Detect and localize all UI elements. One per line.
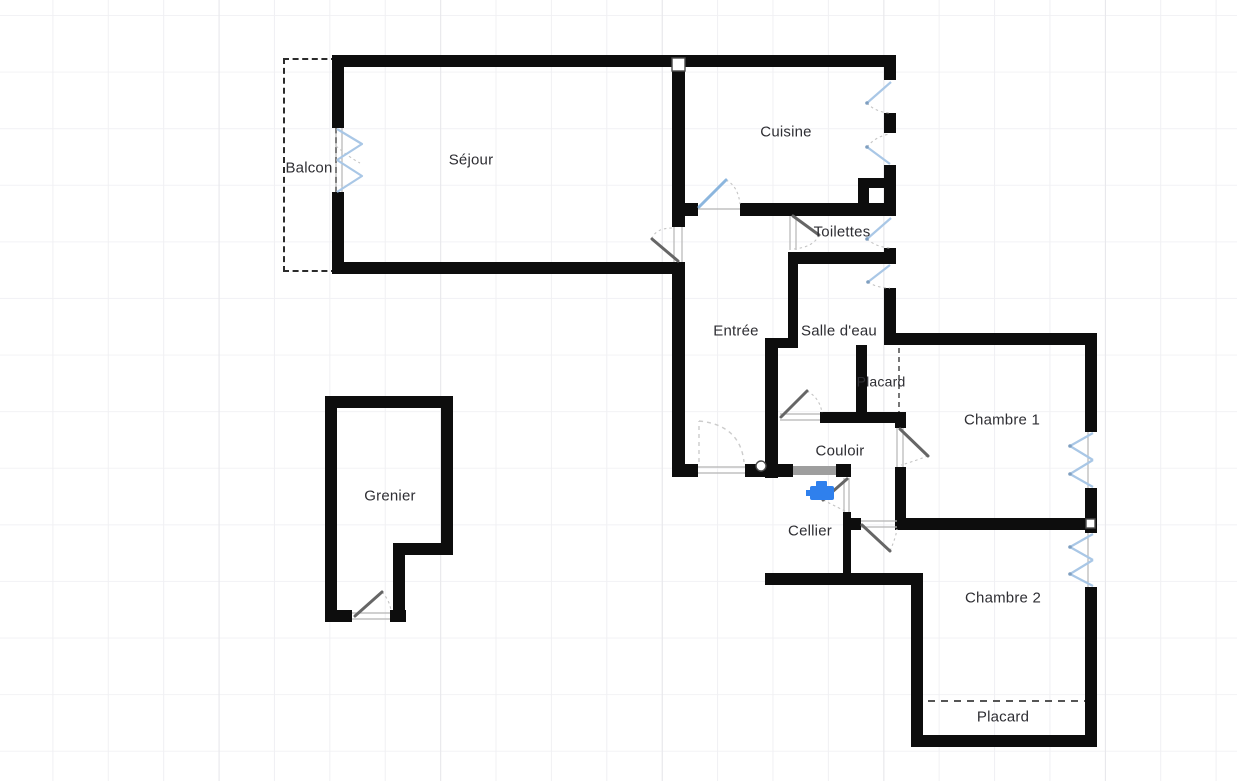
room-label-chambre-1[interactable]: Chambre 1	[964, 412, 1040, 429]
wall-right-seg-3[interactable]	[884, 165, 896, 216]
floorplan-canvas: Balcon Séjour Cuisine Toilettes Entrée S…	[0, 0, 1237, 781]
chambre1-window-panel-2[interactable]	[1070, 460, 1093, 487]
arc-cuisine-window2	[867, 134, 890, 147]
chambre2-door-leaf[interactable]	[862, 525, 890, 551]
room-label-balcon[interactable]: Balcon	[282, 160, 336, 177]
wall-chambre2-bottom[interactable]	[911, 735, 1097, 747]
toilettes-window[interactable]	[867, 218, 891, 239]
wall-entree-bottom-left[interactable]	[672, 464, 698, 477]
sejour-french-window-panel-2[interactable]	[337, 160, 362, 192]
wall-grenier-bottom-right[interactable]	[390, 610, 406, 622]
room-label-cuisine[interactable]: Cuisine	[760, 124, 811, 141]
arc-cuisine-window1	[867, 103, 890, 113]
front-door-arc	[699, 421, 744, 462]
room-label-placard-1[interactable]: Placard	[857, 374, 906, 391]
faucet-icon[interactable]	[806, 481, 834, 500]
wall-chambre2-right-lower[interactable]	[1085, 587, 1097, 747]
wall-grenier-right[interactable]	[441, 396, 453, 555]
wall-chambre1-right-upper[interactable]	[1085, 345, 1097, 432]
chambre2-window-panel-2[interactable]	[1070, 560, 1093, 586]
salle-eau-door-leaf[interactable]	[781, 391, 807, 417]
arc-salle-eau-window	[868, 282, 890, 288]
front-door-swing[interactable]	[699, 421, 744, 462]
chambre1-window-panel-1[interactable]	[1070, 433, 1093, 460]
wall-chambre1-left-stub[interactable]	[895, 412, 906, 428]
room-label-chambre-2[interactable]: Chambre 2	[965, 590, 1041, 607]
room-label-entree[interactable]: Entrée	[713, 323, 758, 340]
cuisine-window-1[interactable]	[867, 82, 891, 103]
room-label-toilettes[interactable]: Toilettes	[814, 224, 871, 241]
room-label-placard-2[interactable]: Placard	[977, 709, 1029, 726]
wall-chambre2-left[interactable]	[911, 573, 923, 747]
floorplan-drawing	[0, 0, 1237, 781]
wall-couloir-left[interactable]	[765, 338, 778, 478]
chambre2-window-panel-1[interactable]	[1070, 534, 1093, 560]
arc-grenier-door	[382, 592, 391, 611]
wall-entree-left[interactable]	[672, 274, 685, 477]
wall-joint-handle-square[interactable]	[672, 58, 685, 71]
wall-cuisine-bottom-right[interactable]	[740, 203, 858, 216]
couloir-cellier-opening[interactable]	[793, 466, 836, 475]
arc-toilettes-window	[867, 239, 890, 248]
walls	[325, 55, 1097, 747]
wall-joint-handle-square-2[interactable]	[1086, 519, 1095, 528]
wall-salle-eau-left[interactable]	[788, 252, 798, 348]
wall-grenier-bottom-left[interactable]	[325, 610, 352, 622]
wall-cuisine-bottom-left[interactable]	[672, 203, 698, 216]
chambre1-door-leaf[interactable]	[900, 429, 928, 456]
room-label-cellier[interactable]: Cellier	[788, 523, 832, 540]
wall-joint-handle-circle[interactable]	[756, 461, 766, 471]
arc-cuisine-door	[726, 180, 740, 204]
wall-sejour-bottom[interactable]	[332, 262, 685, 274]
arc-chambre2-door	[890, 529, 897, 551]
wall-right-seg-2[interactable]	[884, 113, 896, 133]
room-label-couloir[interactable]: Couloir	[816, 443, 865, 460]
wall-right-seg-1[interactable]	[884, 55, 896, 80]
arc-chambre1-door	[901, 456, 928, 465]
wall-grenier-left[interactable]	[325, 396, 337, 622]
room-label-grenier[interactable]: Grenier	[364, 488, 415, 505]
wall-toilettes-bottom[interactable]	[788, 252, 896, 264]
room-label-sejour[interactable]: Séjour	[449, 152, 494, 169]
arc-salle-eau-door	[807, 391, 822, 413]
wall-sejour-left-lower[interactable]	[332, 192, 344, 274]
wall-couloir-bottom[interactable]	[836, 464, 851, 477]
cuisine-window-2[interactable]	[867, 147, 890, 164]
wall-top[interactable]	[332, 55, 896, 67]
joint-markers	[672, 58, 1095, 528]
arc-sejour-door	[652, 228, 673, 239]
wall-chambre1-bottom[interactable]	[895, 518, 1097, 530]
cuisine-glazed-door-leaf[interactable]	[699, 180, 726, 207]
wall-chambre1-top[interactable]	[884, 333, 1097, 345]
sejour-french-window-panel-1[interactable]	[337, 129, 362, 160]
door-swing-arcs	[336, 103, 928, 611]
wall-entree-bottom-right[interactable]	[745, 464, 793, 477]
room-label-salle-eau[interactable]: Salle d'eau	[801, 323, 877, 340]
salle-eau-window[interactable]	[868, 265, 890, 282]
wall-cellier-bottom[interactable]	[765, 573, 923, 585]
wall-grenier-top[interactable]	[325, 396, 452, 408]
wall-sejour-left-upper[interactable]	[332, 55, 344, 128]
wall-chambre2-door-stub[interactable]	[851, 518, 861, 530]
